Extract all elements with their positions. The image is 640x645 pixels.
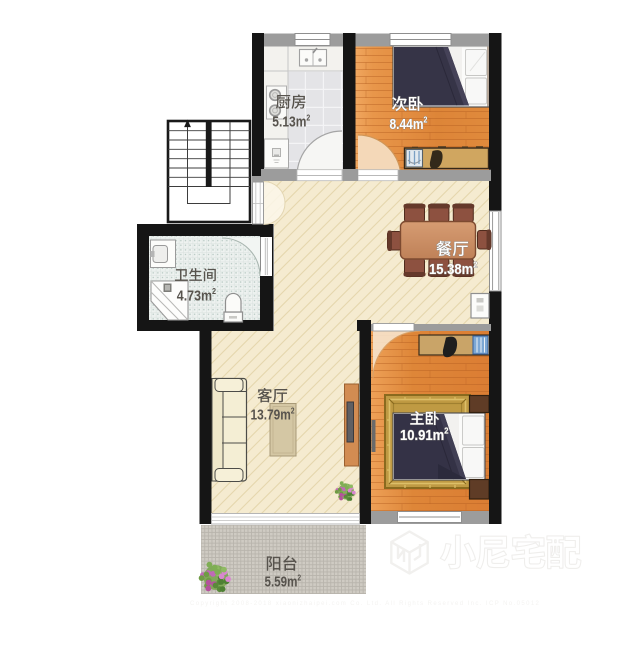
svg-text:13.79m2: 13.79m2 [251, 406, 295, 423]
svg-text:Copyright 2008-2018 xiaonizhai: Copyright 2008-2018 xiaonizhaipei.com Co… [190, 601, 540, 607]
svg-text:5.13m2: 5.13m2 [272, 113, 310, 130]
svg-text:15.38m2: 15.38m2 [429, 260, 478, 277]
svg-text:10.91m2: 10.91m2 [400, 426, 449, 443]
svg-text:8.44m2: 8.44m2 [390, 115, 428, 132]
svg-text:5.59m2: 5.59m2 [265, 573, 302, 590]
svg-text:4.73m2: 4.73m2 [177, 287, 217, 304]
